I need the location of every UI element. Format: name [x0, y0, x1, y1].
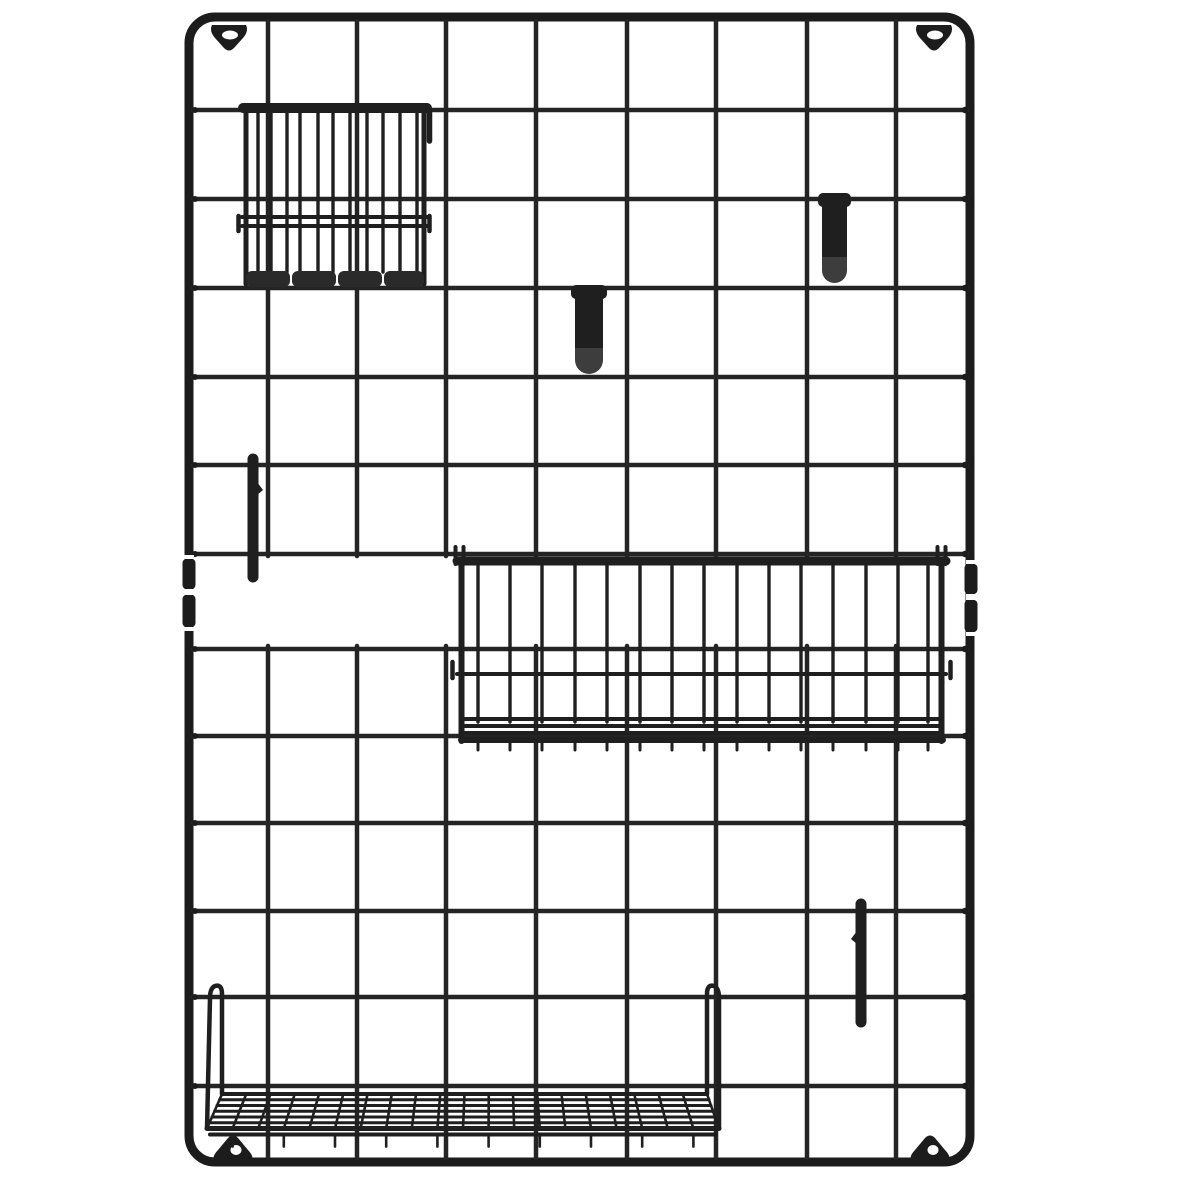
wall-grid-panel-image — [0, 0, 1200, 1200]
mounting-hole — [928, 1145, 939, 1155]
connector-clip — [183, 595, 196, 627]
j-hook — [818, 193, 851, 283]
connector-clip — [183, 559, 196, 589]
mounting-hole — [222, 31, 238, 40]
connector-clip — [965, 600, 978, 632]
connector-clip — [965, 564, 978, 594]
j-hook — [571, 285, 607, 374]
background — [0, 0, 1200, 1200]
wire-grid-wall-organizer-photo — [0, 0, 1200, 1200]
mounting-hole — [927, 31, 943, 40]
